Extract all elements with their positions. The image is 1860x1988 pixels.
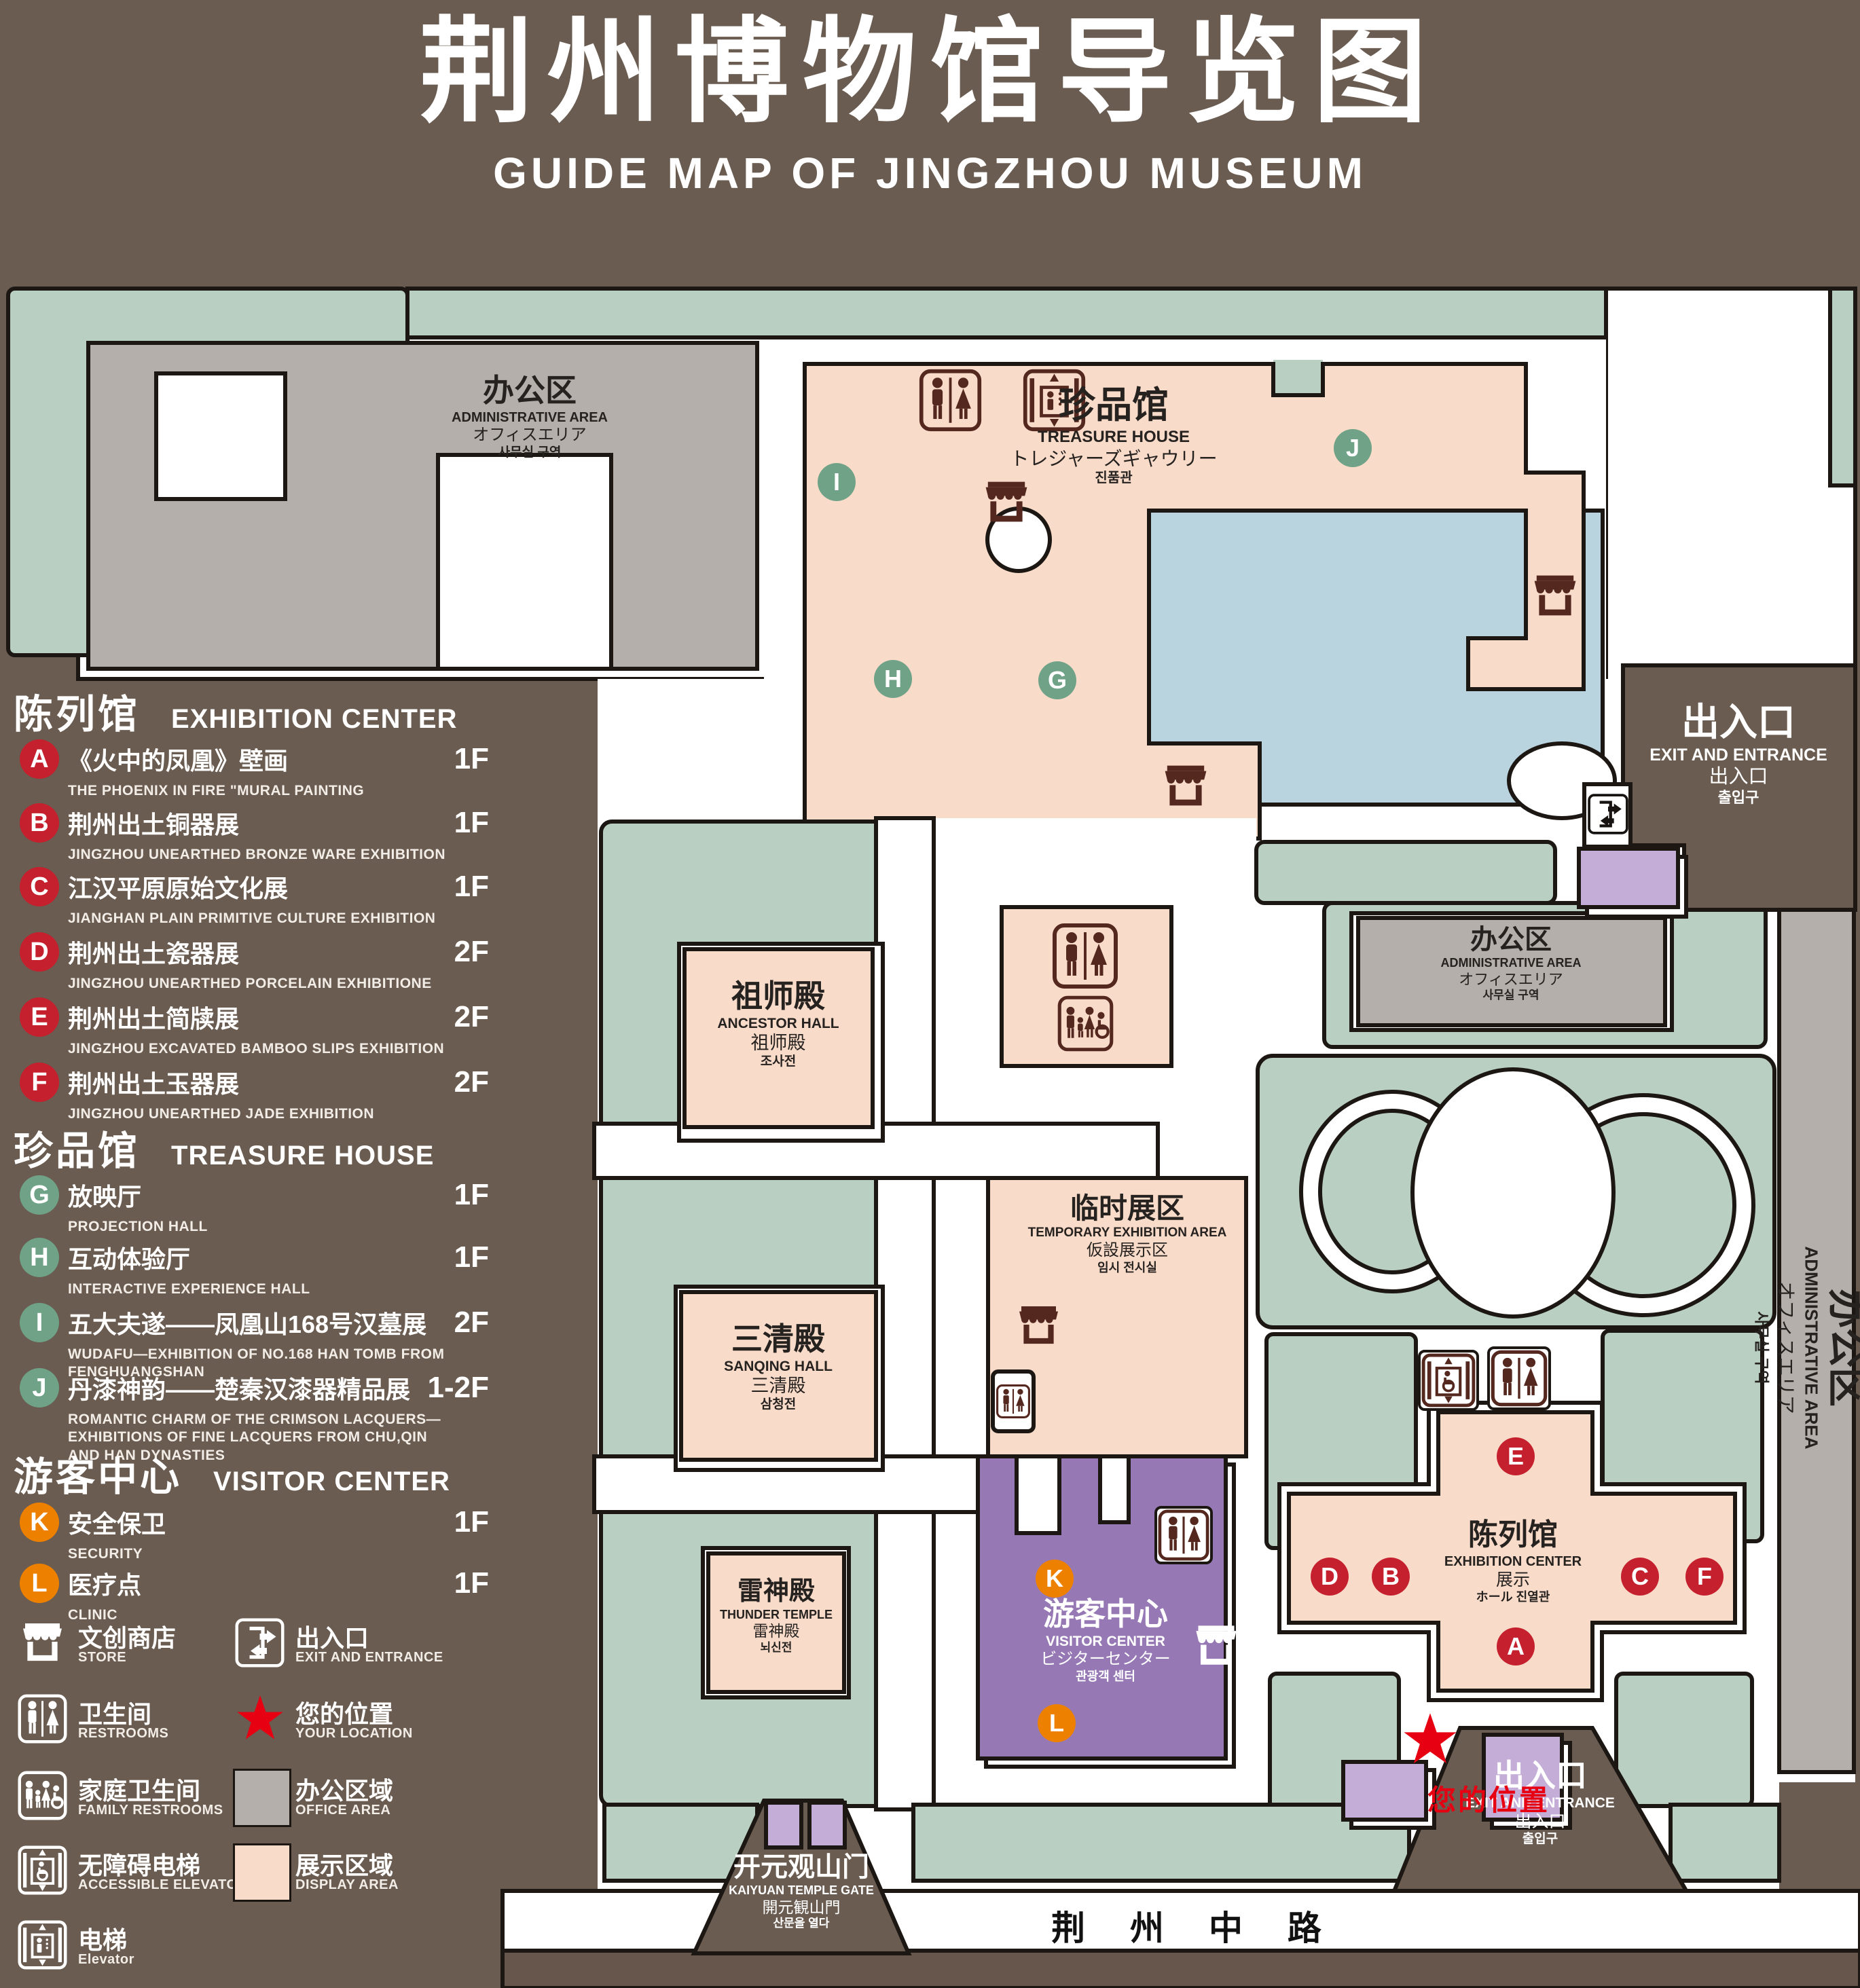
legend-item-sub: PROJECTION HALL (68, 1218, 462, 1236)
legend-item-sub: SECURITY (68, 1545, 462, 1563)
accessible-elevator-icon (1418, 1350, 1479, 1411)
label-temporary-exhibition: 临时展区 TEMPORARY EXHIBITION AREA 仮設展示区 임시 … (1028, 1192, 1227, 1276)
legend-item-sub: THE PHOENIX IN FIRE "MURAL PAINTING (68, 782, 462, 800)
office-area-swatch (233, 1769, 291, 1827)
marker-G: G (1038, 661, 1076, 699)
legend-item-title: 医疗点 (68, 1566, 141, 1601)
symbol-label: 出入口 (295, 1619, 369, 1654)
symbol-label: 展示区域 (295, 1846, 393, 1881)
restroom-icon (996, 1376, 1031, 1427)
marker-K: K (1036, 1560, 1074, 1598)
legend-marker-F: F (20, 1063, 59, 1102)
label-your-location: 您的位置 (1427, 1778, 1550, 1819)
legend-marker-D: D (20, 932, 59, 972)
elevator-icon (17, 1919, 68, 1970)
marker-D: D (1311, 1558, 1349, 1596)
legend-item-title: 荆州出土瓷器展 (68, 934, 239, 970)
legend-item-sub: JINGZHOU UNEARTHED BRONZE WARE EXHIBITIO… (68, 846, 462, 864)
label-road: 荆 州 中 路 (1051, 1901, 1339, 1950)
legend-item-title: 安全保卫 (68, 1505, 166, 1540)
restroom-icon (1487, 1346, 1551, 1410)
legend-marker-J: J (20, 1368, 59, 1407)
label-kaiyuan-gate: 开元观山门 KAIYUAN TEMPLE GATE 開元観山門 산문을 열다 (729, 1851, 874, 1931)
legend-marker-B: B (20, 803, 59, 843)
green-parcel (1616, 1674, 1752, 1806)
store-icon (1159, 759, 1213, 813)
building-gate-purple (766, 1803, 801, 1847)
legend-item-floor: 2F (421, 935, 489, 969)
label-exhibition-center: 陈列馆 EXHIBITION CENTER 展示 ホール 진열관 (1444, 1517, 1582, 1604)
legend-item-floor: 1F (421, 1505, 489, 1539)
section-title-en: VISITOR CENTER (213, 1467, 450, 1497)
legend-item-title: 五大夫遂——凤凰山168号汉墓展 (68, 1305, 426, 1340)
symbol-label-en: Elevator (78, 1952, 134, 1968)
marker-I: I (818, 463, 856, 501)
symbol-label-en: DISPLAY AREA (295, 1877, 399, 1893)
symbol-label: 卫生间 (78, 1695, 151, 1730)
marker-L: L (1038, 1704, 1076, 1742)
store-icon (1013, 1300, 1064, 1351)
symbol-label: 无障碍电梯 (78, 1846, 200, 1881)
symbol-label-en: OFFICE AREA (295, 1803, 390, 1818)
restroom-icon (1051, 922, 1119, 990)
marker-J: J (1334, 429, 1372, 467)
legend-item-floor: 1F (421, 870, 489, 904)
label-admin-top-left: 办公区 ADMINISTRATIVE AREA オフィスエリア 사무실 구역 (452, 372, 608, 461)
label-treasure-house: 珍品馆 TREASURE HOUSE トレジャーズギャウリー 진품관 (1010, 384, 1217, 486)
building-gate-purple (809, 1803, 845, 1847)
legend-section-exhibition-center: 陈列馆 EXHIBITION CENTER (14, 682, 458, 739)
legend-marker-L: L (20, 1564, 59, 1603)
legend-item-title: 互动体验厅 (68, 1240, 190, 1275)
symbol-label: 家庭卫生间 (78, 1771, 200, 1807)
marker-B: B (1372, 1558, 1410, 1596)
family-restroom-icon (1057, 995, 1114, 1052)
legend-item-sub: JINGZHOU UNEARTHED PORCELAIN EXHIBITIONE (68, 975, 462, 993)
label-thunder-temple: 雷神殿 THUNDER TEMPLE 雷神殿 뇌신전 (720, 1577, 833, 1655)
symbol-label-en: EXIT AND ENTRANCE (295, 1650, 443, 1665)
green-right-edge (1830, 289, 1855, 485)
symbol-label-en: FAMILY RESTROOMS (78, 1803, 223, 1818)
display-area-swatch (233, 1843, 291, 1902)
legend-item-floor: 1F (421, 1178, 489, 1212)
store-icon (17, 1617, 68, 1668)
legend-marker-A: A (20, 739, 59, 779)
courtyard (438, 455, 611, 669)
legend-marker-H: H (20, 1238, 59, 1277)
legend-marker-I: I (20, 1303, 59, 1342)
section-title-zh: 珍品馆 (14, 1119, 140, 1176)
label-admin-strip: 办公区 ADMINISTRATIVE AREA オフィスエリア 사무실 구역 (1752, 1247, 1860, 1450)
marker-A: A (1497, 1627, 1535, 1665)
marker-E: E (1497, 1437, 1535, 1475)
legend-item-title: 江汉平原原始文化展 (68, 869, 288, 904)
green-parcel (1671, 1805, 1779, 1881)
legend-item-title: 放映厅 (68, 1177, 141, 1213)
symbol-label-en: ACCESSIBLE ELEVATOR (78, 1877, 248, 1893)
restroom-icon (1154, 1506, 1213, 1564)
exit-entrance-icon (1587, 793, 1629, 835)
symbol-label: 电梯 (78, 1921, 127, 1956)
legend-marker-K: K (20, 1503, 59, 1542)
legend-section-visitor-center: 游客中心 VISITOR CENTER (14, 1445, 450, 1502)
road-band-brown (503, 1951, 1860, 1988)
courtyard (156, 373, 285, 499)
family-restroom-icon (17, 1770, 68, 1821)
symbol-label: 办公区域 (295, 1771, 393, 1807)
label-admin-right: 办公区 ADMINISTRATIVE AREA オフィスエリア 사무실 구역 (1441, 923, 1582, 1002)
legend-item-title: 荆州出土铜器展 (68, 805, 239, 841)
legend-item-floor: 2F (421, 1000, 489, 1034)
restroom-icon (17, 1693, 68, 1744)
legend-item-sub: INTERACTIVE EXPERIENCE HALL (68, 1281, 462, 1298)
legend-item-floor: 2F (421, 1306, 489, 1340)
legend-item-title: 丹漆神韵——楚秦汉漆器精品展 (68, 1370, 410, 1405)
exit-entrance-icon (234, 1617, 285, 1668)
label-visitor-center: 游客中心 VISITOR CENTER ビジターセンター 관광객 센터 (1040, 1596, 1171, 1685)
courtyard (1100, 1456, 1129, 1522)
legend-item-floor: 1F (421, 806, 489, 840)
restroom-icon (918, 368, 983, 432)
symbol-label: 文创商店 (78, 1619, 176, 1654)
marker-C: C (1621, 1558, 1659, 1596)
green-top-band (407, 289, 1606, 337)
store-icon (1528, 569, 1582, 623)
symbol-label-en: YOUR LOCATION (295, 1726, 413, 1742)
symbol-label: 您的位置 (295, 1695, 393, 1730)
legend-item-title: 荆州出土简牍展 (68, 999, 239, 1035)
label-sanqing-hall: 三清殿 SANQING HALL 三清殿 삼청전 (724, 1321, 833, 1413)
green-parcel (913, 1805, 1409, 1881)
section-title-en: TREASURE HOUSE (171, 1141, 434, 1171)
section-title-zh: 陈列馆 (14, 682, 140, 739)
marker-H: H (874, 660, 912, 698)
legend-item-floor: 1F (421, 1566, 489, 1600)
legend-marker-G: G (20, 1175, 59, 1215)
legend-item-floor: 1-2F (421, 1371, 489, 1405)
courtyard (1017, 1456, 1059, 1533)
legend-item-floor: 1F (421, 742, 489, 776)
legend-item-sub: JIANGHAN PLAIN PRIMITIVE CULTURE EXHIBIT… (68, 910, 462, 927)
symbol-label-en: STORE (78, 1650, 126, 1665)
garden-plaza (1412, 1069, 1613, 1317)
legend-item-title: 《火中的凤凰》壁画 (68, 741, 288, 777)
building-gate-purple (1343, 1762, 1426, 1820)
label-exit-top-right: 出入口 EXIT AND ENTRANCE 出入口 출입구 (1649, 699, 1827, 807)
section-title-zh: 游客中心 (14, 1445, 182, 1502)
legend-item-title: 荆州出土玉器展 (68, 1065, 239, 1100)
building-gate-purple (1579, 849, 1678, 907)
symbol-label-en: RESTROOMS (78, 1726, 168, 1742)
green-parcel (1256, 842, 1555, 903)
label-ancestor-hall: 祖师殿 ANCESTOR HALL 祖师殿 조사전 (717, 978, 839, 1070)
legend-item-floor: 2F (421, 1065, 489, 1099)
section-title-en: EXHIBITION CENTER (171, 704, 457, 735)
legend-section-treasure-house: 珍品馆 TREASURE HOUSE (14, 1119, 434, 1176)
legend-marker-C: C (20, 867, 59, 906)
accessible-elevator-icon (17, 1845, 68, 1896)
your-location-star-icon (1402, 1711, 1458, 1767)
your-location-star-icon (236, 1693, 285, 1742)
legend-item-floor: 1F (421, 1240, 489, 1274)
store-icon (1190, 1619, 1243, 1672)
marker-F: F (1685, 1558, 1724, 1596)
legend-marker-E: E (20, 997, 59, 1037)
legend-item-sub: JINGZHOU EXCAVATED BAMBOO SLIPS EXHIBITI… (68, 1040, 462, 1058)
